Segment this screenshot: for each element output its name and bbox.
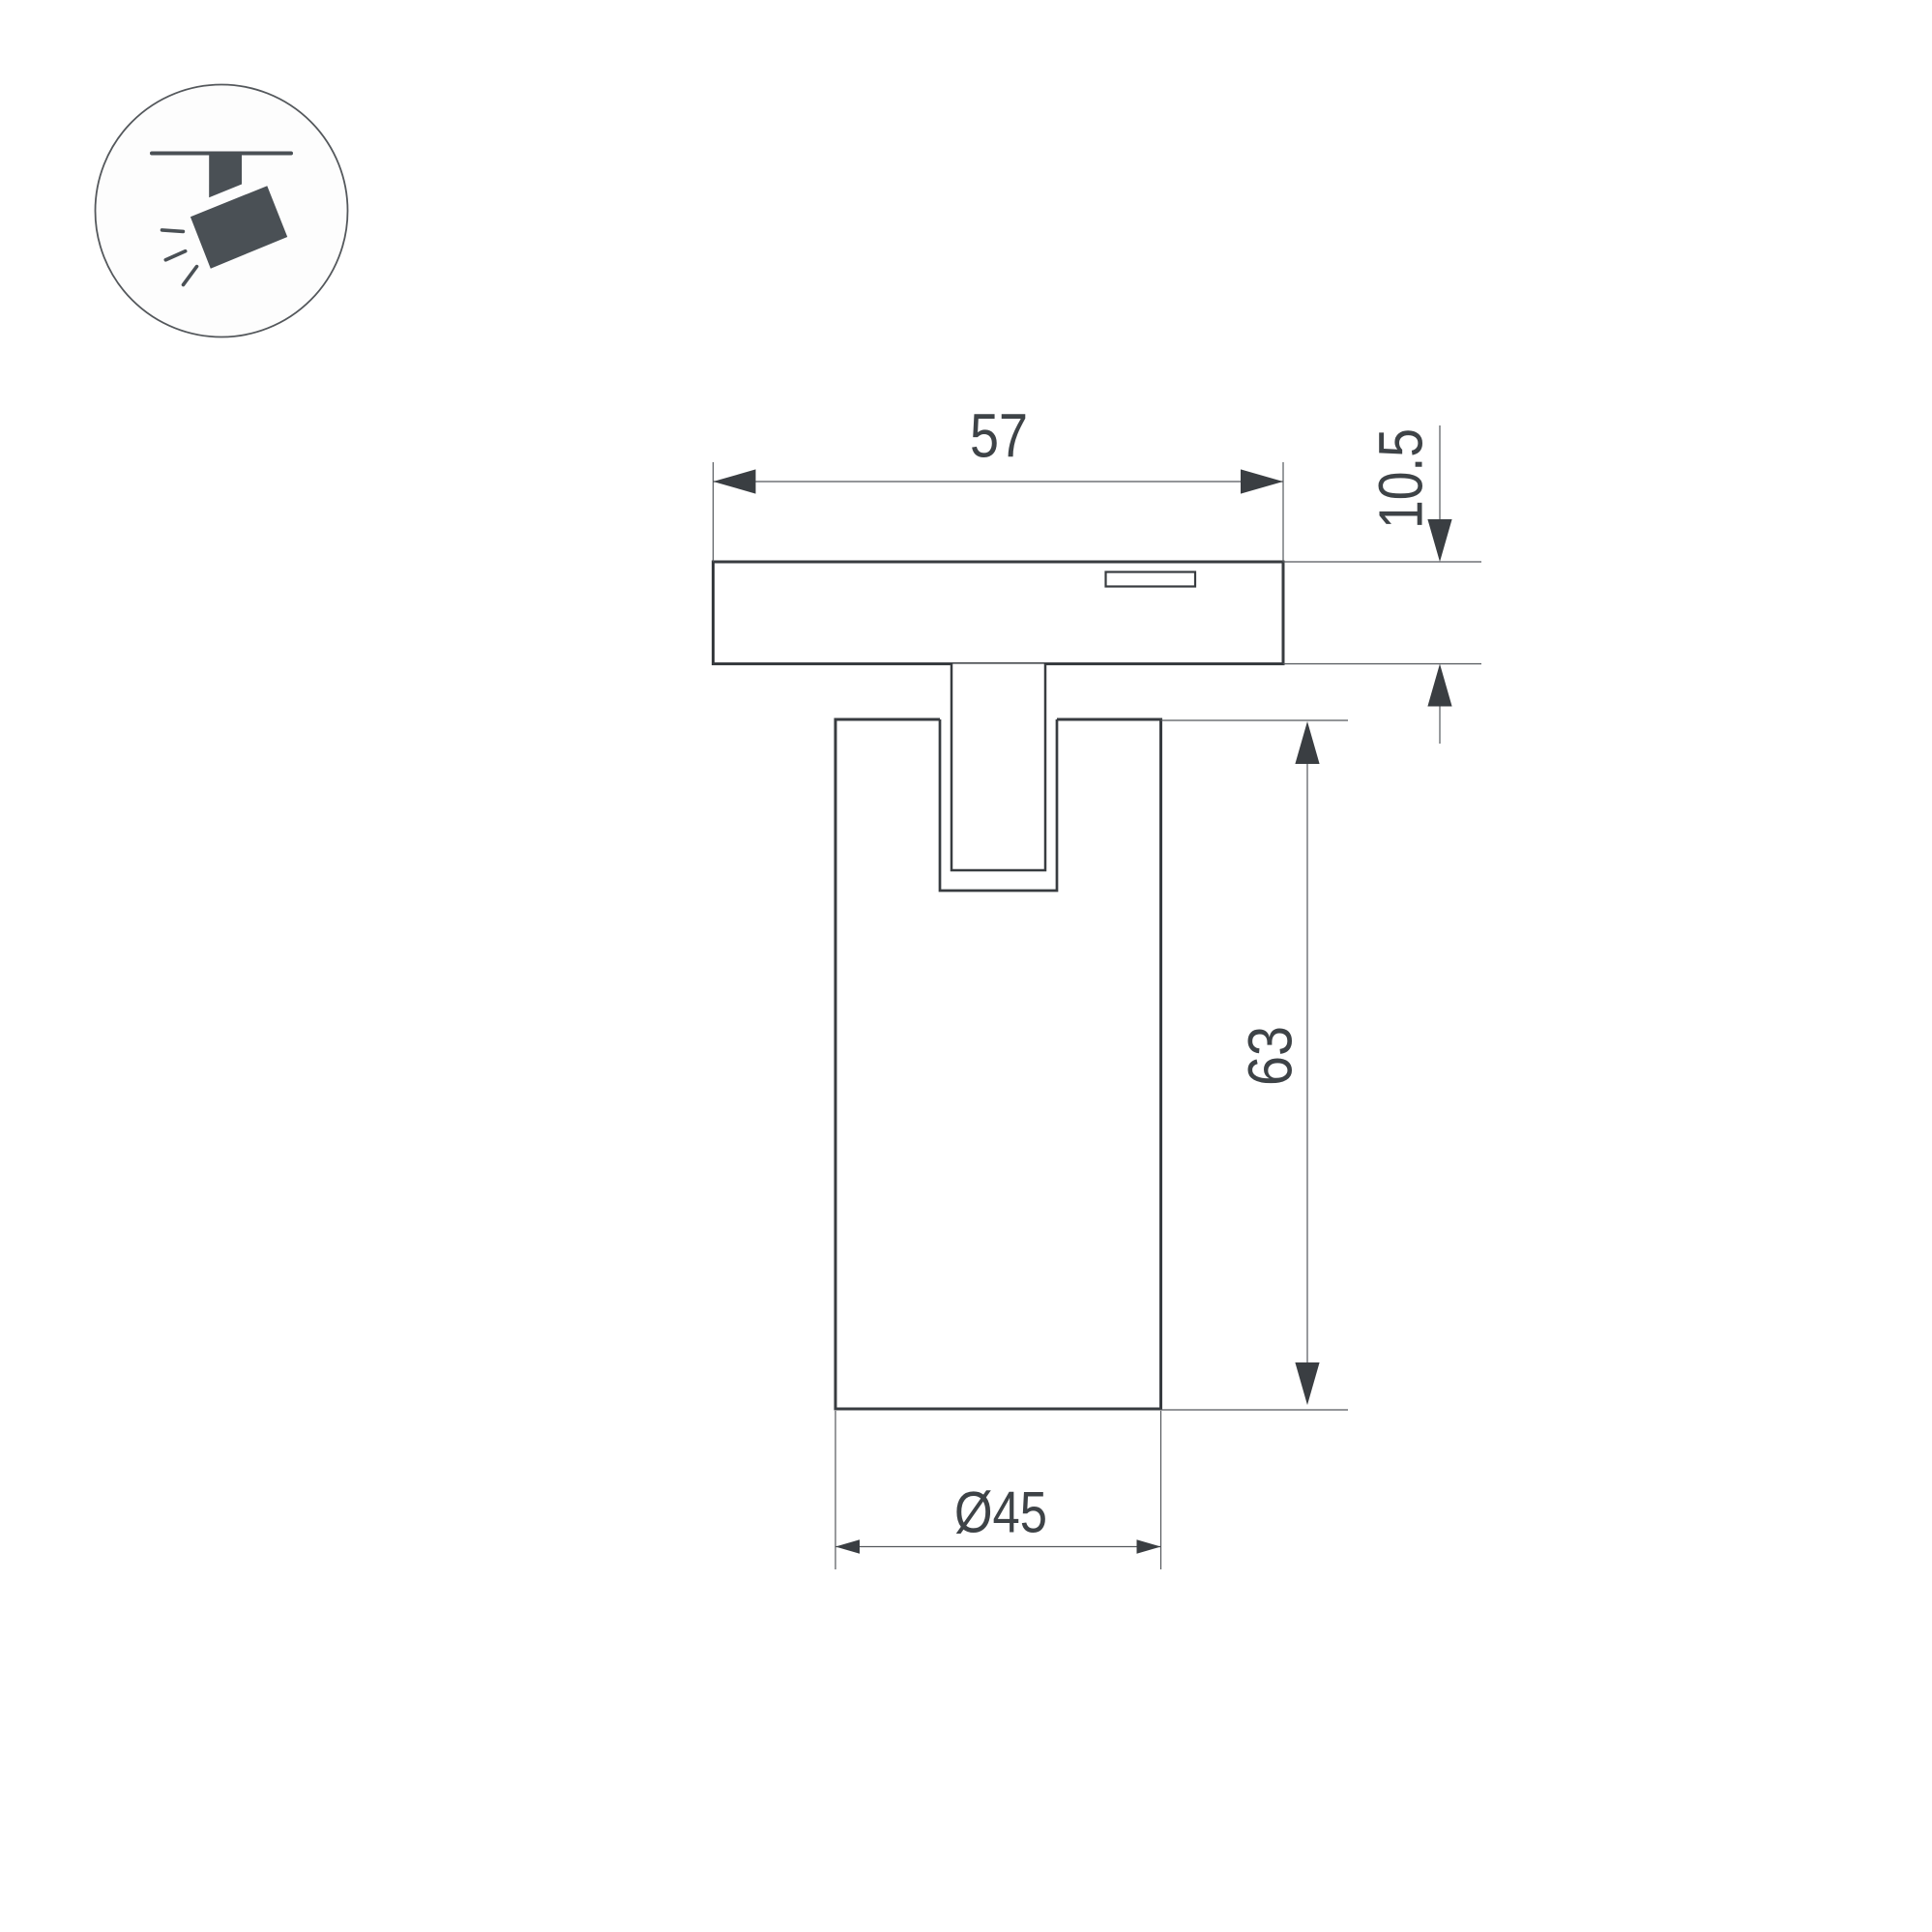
svg-text:57: 57 [970,401,1028,471]
svg-text:10.5: 10.5 [1366,428,1436,529]
svg-text:63: 63 [1236,1026,1305,1086]
svg-text:Ø45: Ø45 [954,1480,1047,1545]
